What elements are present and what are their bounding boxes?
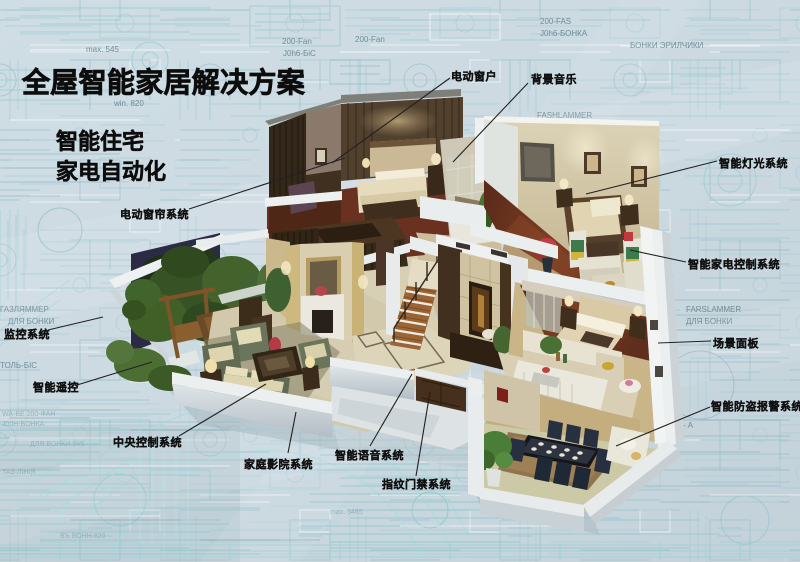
svg-text:J00H-БОНКА: J00H-БОНКА <box>2 421 45 428</box>
svg-text:ТОЛЬ-БІС: ТОЛЬ-БІС <box>0 361 37 370</box>
svg-text:200-Fan: 200-Fan <box>355 35 385 44</box>
svg-text:200-FAS: 200-FAS <box>540 17 571 26</box>
svg-text:J0h6-БОНКА: J0h6-БОНКА <box>540 29 588 38</box>
svg-text:200-Fan: 200-Fan <box>282 37 312 46</box>
svg-text:FARSLAMMER: FARSLAMMER <box>686 305 741 314</box>
svg-text:max. 545: max. 545 <box>86 45 119 54</box>
svg-text:J0h6-БіС: J0h6-БіС <box>283 49 316 58</box>
svg-text:WA-BE 200-ФАН: WA-BE 200-ФАН <box>2 411 56 418</box>
svg-text:ВЪ ВОНН 820: ВЪ ВОНН 820 <box>60 533 105 540</box>
